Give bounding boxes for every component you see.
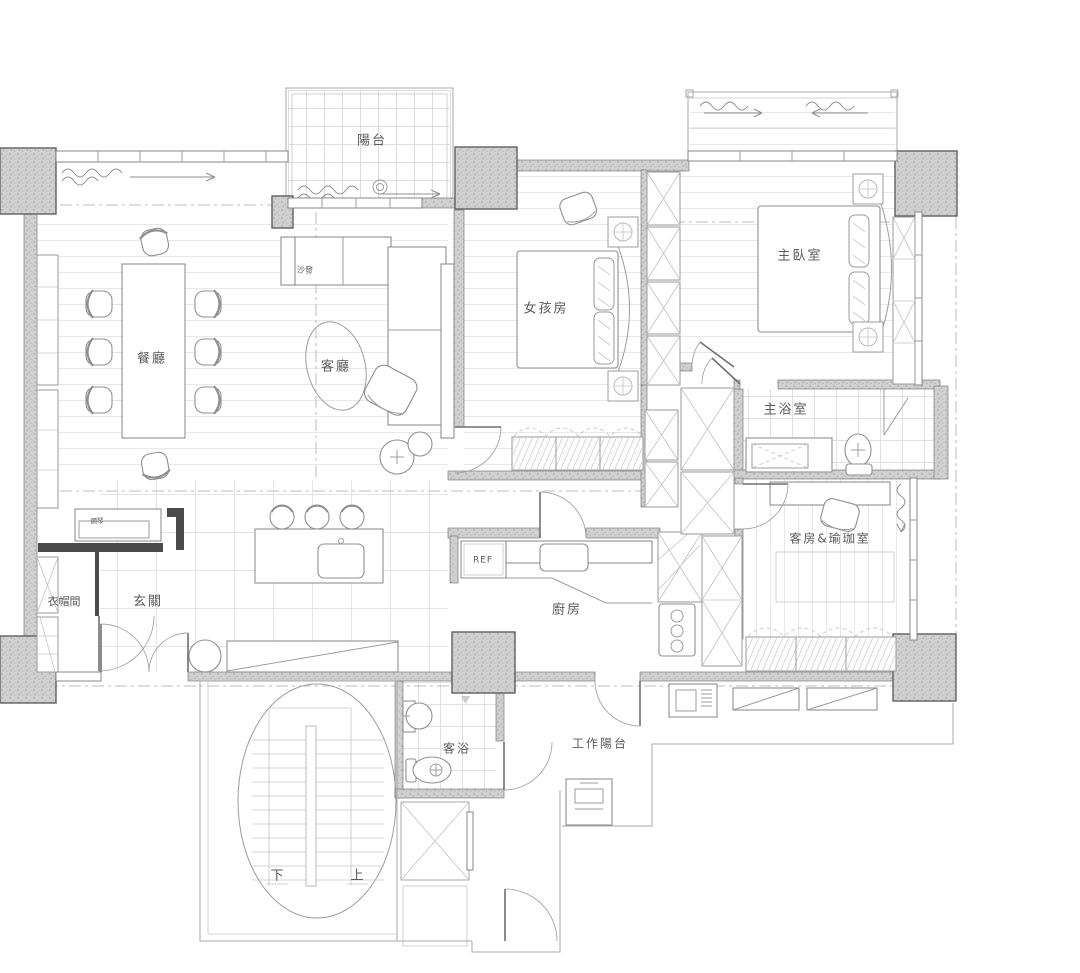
label-sofa: 沙發 xyxy=(297,266,313,275)
label-cloakroom: 衣帽間 xyxy=(48,594,81,608)
label-master-bath: 主浴室 xyxy=(763,402,808,418)
label-stair-up: 上 xyxy=(350,869,363,884)
kitchen-island xyxy=(255,505,383,583)
label-work-balcony: 工作陽台 xyxy=(572,736,628,751)
elevator-lobby xyxy=(397,790,560,952)
label-stair-down: 下 xyxy=(270,869,283,884)
label-master-bedroom: 主臥室 xyxy=(777,248,822,264)
label-guest-bath: 客浴 xyxy=(443,741,471,756)
label-piano: 鋼琴 xyxy=(91,516,105,525)
work-balcony-items xyxy=(461,681,953,826)
staircase xyxy=(200,681,397,941)
label-foyer: 玄關 xyxy=(133,595,163,610)
floor-plan-page: 陽台 餐廳 客廳 女孩房 主臥室 主浴室 客房&瑜珈室 衣帽間 玄關 廚房 客浴… xyxy=(0,0,1080,973)
label-dining-room: 餐廳 xyxy=(137,351,167,367)
label-girls-room: 女孩房 xyxy=(523,301,568,317)
label-living-room: 客廳 xyxy=(321,359,351,375)
label-balcony: 陽台 xyxy=(357,134,387,149)
label-guest-yoga: 客房&瑜珈室 xyxy=(789,531,870,546)
floor-plan-canvas: 陽台 餐廳 客廳 女孩房 主臥室 主浴室 客房&瑜珈室 衣帽間 玄關 廚房 客浴… xyxy=(0,0,1080,973)
label-fridge: REF xyxy=(473,556,493,566)
label-kitchen: 廚房 xyxy=(552,602,582,618)
